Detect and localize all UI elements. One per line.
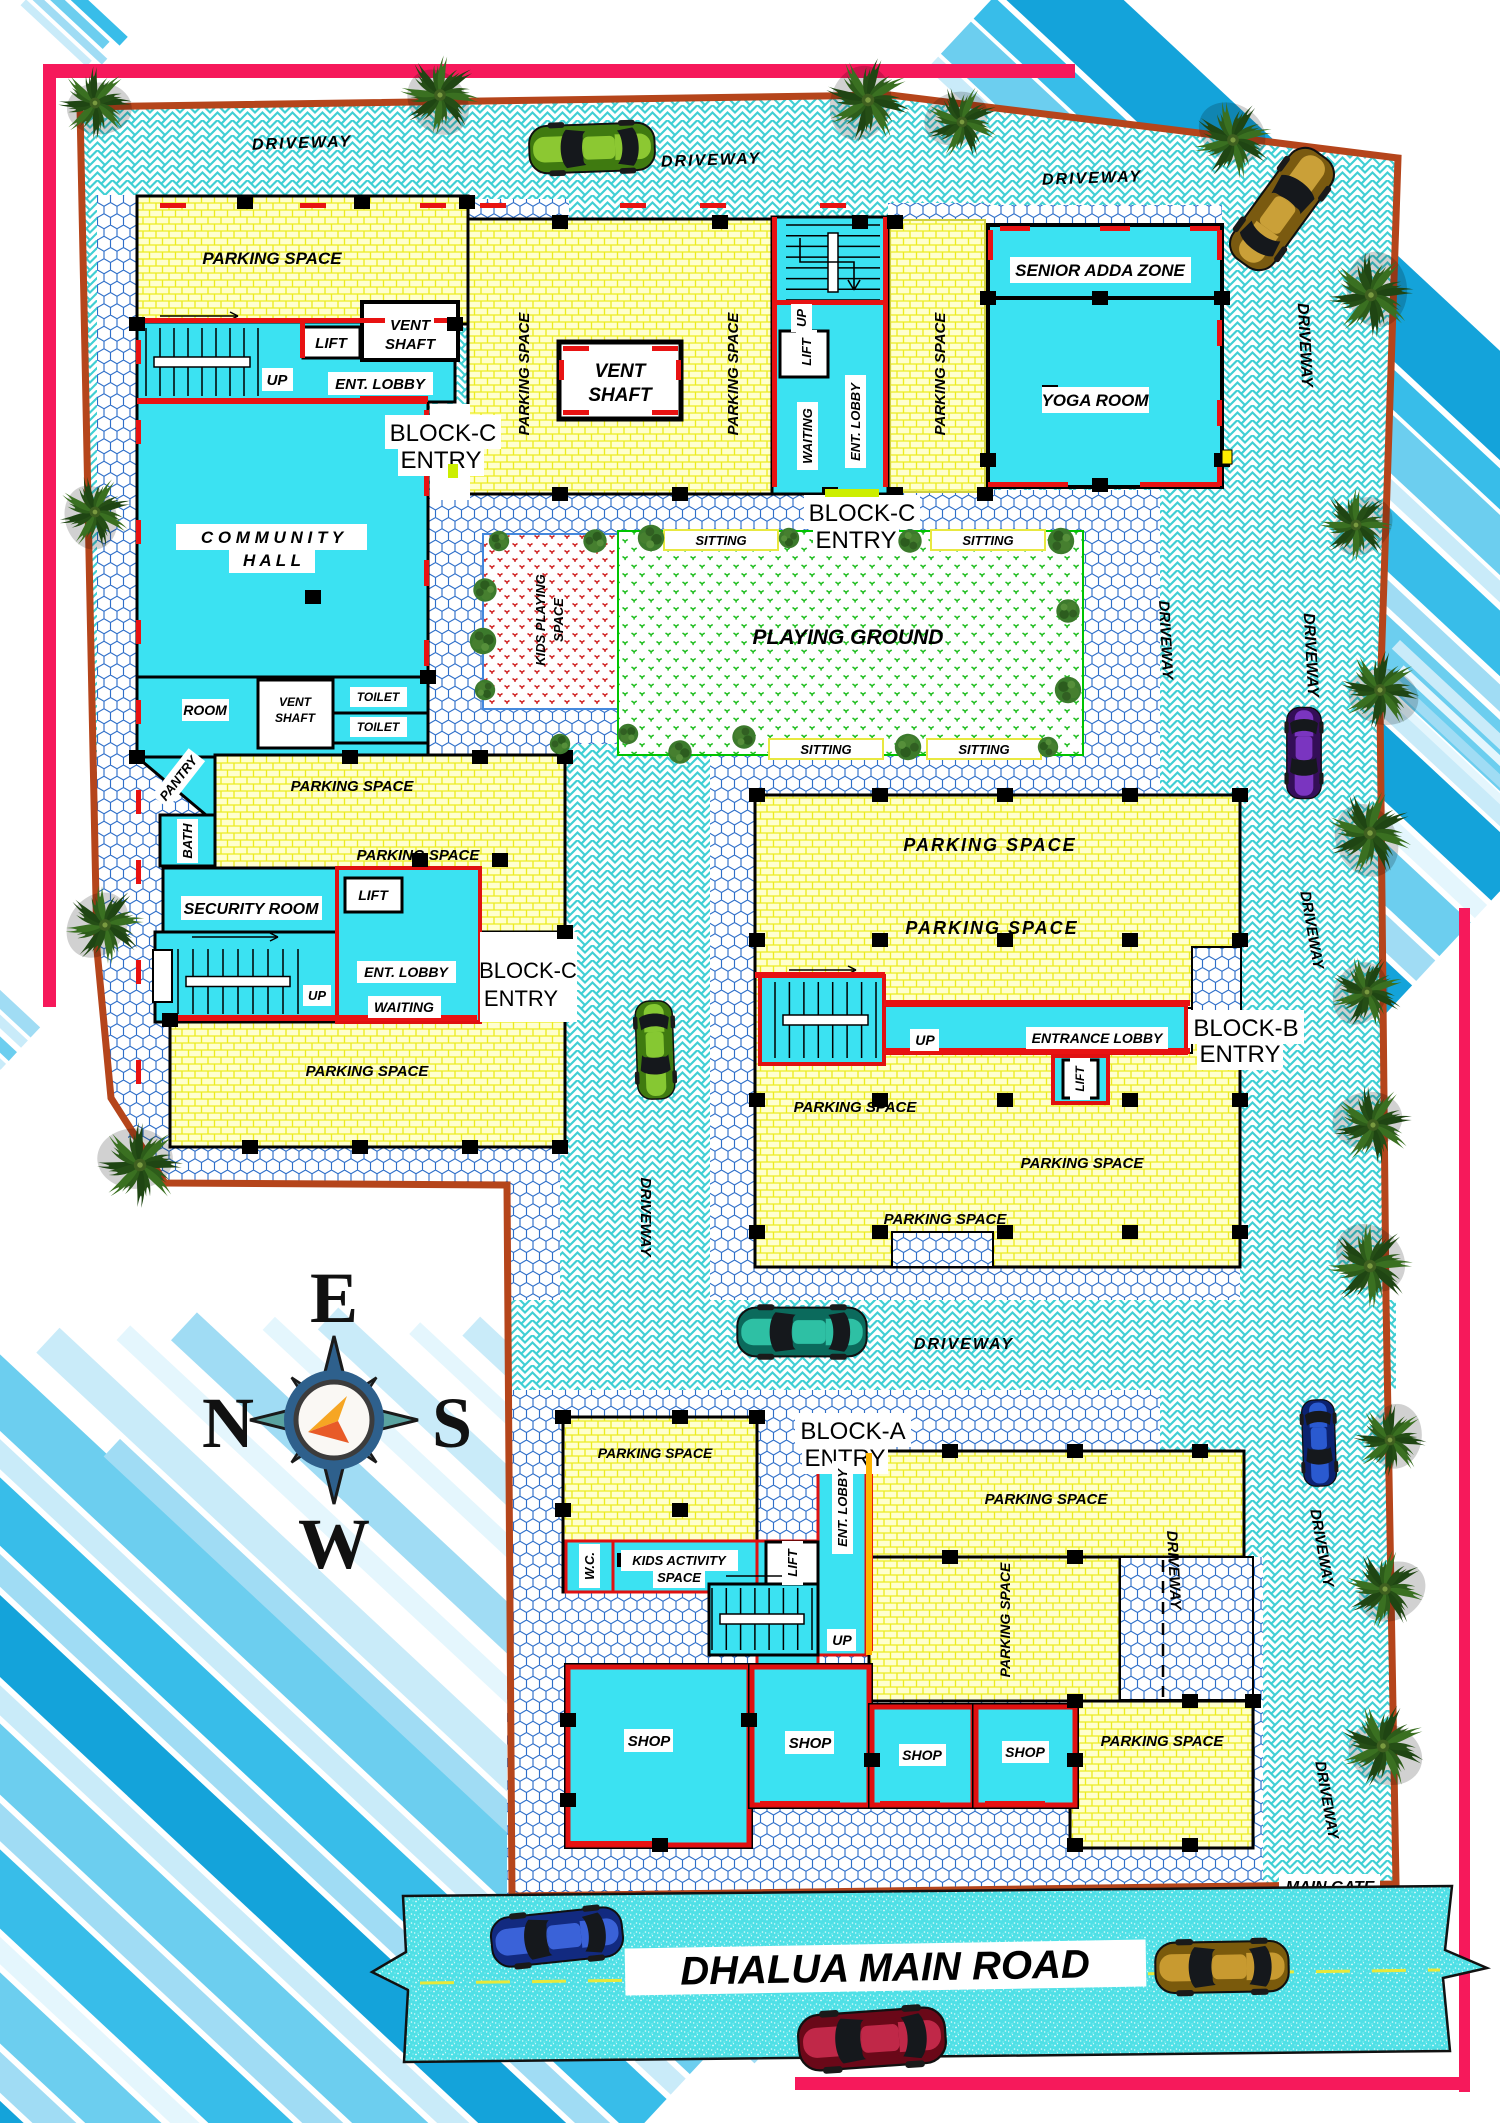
svg-text:PARKING SPACE: PARKING SPACE <box>725 312 742 436</box>
svg-text:LIFT: LIFT <box>799 337 814 365</box>
svg-text:UP: UP <box>794 309 809 327</box>
svg-text:ENTRY: ENTRY <box>484 986 558 1011</box>
svg-text:VENT: VENT <box>595 361 647 382</box>
svg-text:YOGA ROOM: YOGA ROOM <box>1041 391 1149 410</box>
svg-text:BATH: BATH <box>180 823 195 859</box>
svg-text:DRIVEWAY: DRIVEWAY <box>661 150 762 170</box>
svg-text:SENIOR ADDA ZONE: SENIOR ADDA ZONE <box>1015 261 1185 280</box>
svg-text:DHALUA MAIN ROAD: DHALUA MAIN ROAD <box>680 1942 1090 1993</box>
svg-text:UP: UP <box>832 1632 852 1648</box>
svg-text:ENTRY: ENTRY <box>816 527 897 554</box>
svg-text:VENT: VENT <box>279 695 313 709</box>
svg-text:VENT: VENT <box>390 317 432 334</box>
svg-text:PLAYING GROUND: PLAYING GROUND <box>753 626 944 649</box>
svg-text:ENT. LOBBY: ENT. LOBBY <box>835 1468 850 1547</box>
svg-text:PARKING SPACE: PARKING SPACE <box>1021 1155 1145 1172</box>
svg-text:DRIVEWAY: DRIVEWAY <box>637 1178 654 1259</box>
svg-text:PARKING SPACE: PARKING SPACE <box>202 249 342 268</box>
svg-text:ENT. LOBBY: ENT. LOBBY <box>848 382 863 461</box>
svg-text:UP: UP <box>915 1032 935 1048</box>
svg-text:TOILET: TOILET <box>357 690 401 704</box>
svg-text:LIFT: LIFT <box>785 1548 800 1576</box>
svg-text:PARKING SPACE: PARKING SPACE <box>357 847 481 864</box>
svg-text:TOILET: TOILET <box>357 720 401 734</box>
svg-text:UP: UP <box>308 988 326 1003</box>
svg-text:W: W <box>298 1504 370 1584</box>
svg-text:SITTING: SITTING <box>962 533 1013 548</box>
svg-text:PARKING SPACE: PARKING SPACE <box>932 312 949 436</box>
svg-text:SHOP: SHOP <box>628 1733 672 1750</box>
svg-text:ROOM: ROOM <box>183 702 227 718</box>
svg-text:BLOCK-C: BLOCK-C <box>479 958 577 983</box>
svg-text:SHOP: SHOP <box>789 1735 833 1752</box>
svg-text:UP: UP <box>267 372 289 389</box>
svg-text:W.C.: W.C. <box>582 1552 597 1580</box>
svg-text:E: E <box>310 1258 358 1338</box>
svg-text:SHOP: SHOP <box>902 1747 942 1763</box>
svg-text:PARKING SPACE: PARKING SPACE <box>306 1063 430 1080</box>
svg-text:DRIVEWAY: DRIVEWAY <box>1042 168 1143 188</box>
svg-text:LIFT: LIFT <box>1073 1065 1087 1092</box>
svg-text:SHOP: SHOP <box>1005 1744 1045 1760</box>
svg-text:H A L L: H A L L <box>243 551 301 570</box>
svg-text:SECURITY ROOM: SECURITY ROOM <box>184 901 320 918</box>
svg-text:SHAFT: SHAFT <box>275 711 317 725</box>
svg-text:WAITING: WAITING <box>800 408 815 464</box>
svg-text:PARKING SPACE: PARKING SPACE <box>598 1445 713 1461</box>
svg-text:PARKING SPACE: PARKING SPACE <box>903 835 1076 855</box>
svg-text:ENT. LOBBY: ENT. LOBBY <box>335 376 427 393</box>
svg-text:PARKING SPACE: PARKING SPACE <box>1101 1733 1225 1750</box>
svg-text:LIFT: LIFT <box>358 887 389 903</box>
svg-text:PARKING SPACE: PARKING SPACE <box>516 312 533 436</box>
svg-text:PARKING SPACE: PARKING SPACE <box>794 1099 918 1116</box>
svg-text:PARKING SPACE: PARKING SPACE <box>905 918 1078 938</box>
svg-text:PARKING SPACE: PARKING SPACE <box>884 1211 1008 1228</box>
svg-text:ENTRY: ENTRY <box>1200 1041 1281 1068</box>
svg-text:S: S <box>432 1383 472 1463</box>
svg-text:KIDS ACTIVITY: KIDS ACTIVITY <box>632 1553 727 1568</box>
svg-text:SHAFT: SHAFT <box>588 385 653 406</box>
svg-text:PARKING SPACE: PARKING SPACE <box>985 1491 1109 1508</box>
svg-text:ENT. LOBBY: ENT. LOBBY <box>364 964 449 980</box>
svg-text:SPACE: SPACE <box>551 598 566 642</box>
svg-text:SPACE: SPACE <box>657 1570 701 1585</box>
svg-text:WAITING: WAITING <box>374 999 434 1015</box>
svg-text:SITTING: SITTING <box>695 533 746 548</box>
svg-text:SITTING: SITTING <box>800 742 851 757</box>
svg-text:KIDS PLAYING: KIDS PLAYING <box>533 574 548 666</box>
svg-text:C O M M U N I T Y: C O M M U N I T Y <box>201 528 345 547</box>
svg-text:ENTRANCE LOBBY: ENTRANCE LOBBY <box>1032 1030 1164 1046</box>
svg-text:PARKING SPACE: PARKING SPACE <box>997 1562 1013 1677</box>
svg-text:N: N <box>202 1383 254 1463</box>
svg-text:DRIVEWAY: DRIVEWAY <box>252 133 353 153</box>
svg-text:SITTING: SITTING <box>958 742 1009 757</box>
svg-text:SHAFT: SHAFT <box>385 336 437 353</box>
svg-text:DRIVEWAY: DRIVEWAY <box>914 1336 1014 1353</box>
svg-text:LIFT: LIFT <box>315 335 348 352</box>
svg-text:ENTRY: ENTRY <box>401 447 482 474</box>
svg-text:PARKING SPACE: PARKING SPACE <box>291 778 415 795</box>
